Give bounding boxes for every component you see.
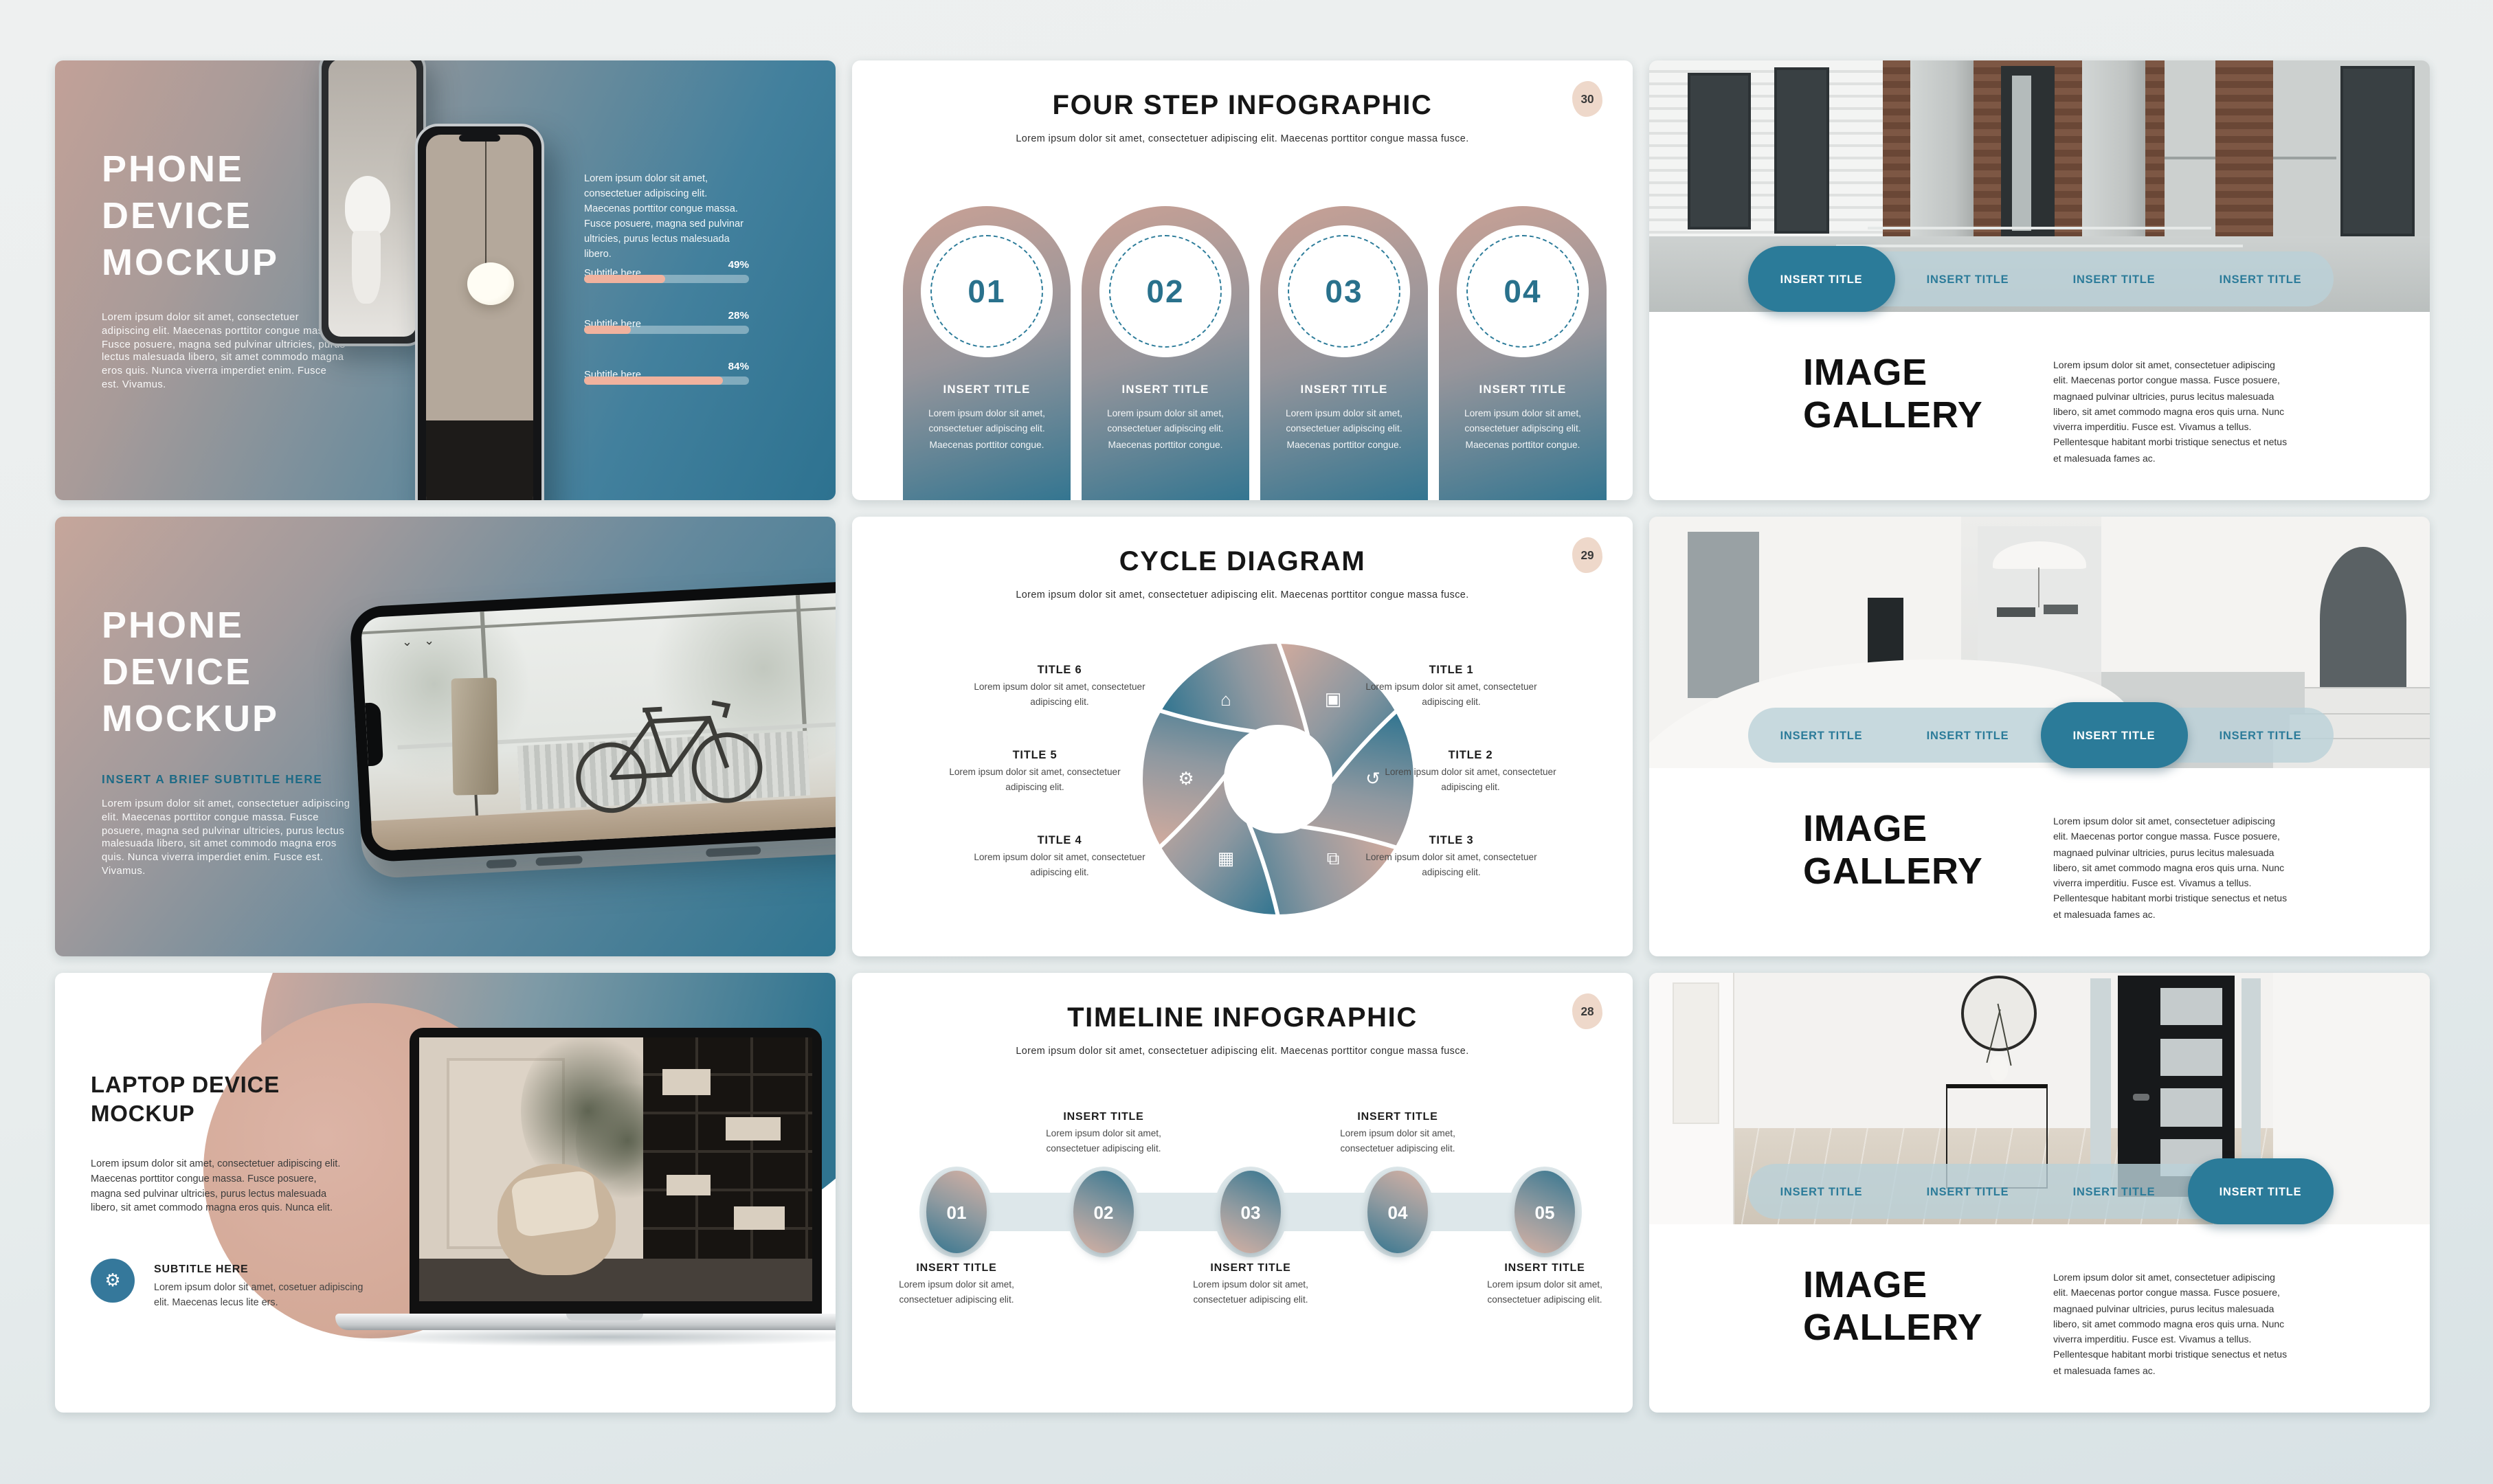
- callout-title: SUBTITLE HERE: [154, 1263, 249, 1275]
- siding-wall: [1649, 60, 1891, 244]
- step-number-circle: 03: [1278, 225, 1410, 357]
- chair-cushion: [510, 1169, 600, 1238]
- dark-floor: [419, 1259, 812, 1301]
- gallery-tab-bar: INSERT TITLE INSERT TITLE INSERT TITLE I…: [1748, 1164, 2334, 1219]
- door-pane: [2160, 1088, 2223, 1126]
- birds: ⌄ ⌄: [401, 633, 438, 650]
- tab-insert-title-3[interactable]: INSERT TITLE: [2041, 1164, 2187, 1219]
- shelf-pillow: [734, 1206, 785, 1230]
- door-glass: [2012, 76, 2031, 232]
- vase-shape: [344, 176, 390, 237]
- body-text: Lorem ipsum dolor sit amet, consectetuer…: [2053, 359, 2290, 467]
- lamp-cord: [485, 135, 487, 270]
- step-title: INSERT TITLE: [903, 382, 1071, 396]
- tab-insert-title-2[interactable]: INSERT TITLE: [1894, 251, 2041, 306]
- progress-track: [584, 326, 749, 334]
- cycle-item-2: TITLE 2 Lorem ipsum dolor sit amet, cons…: [1381, 749, 1560, 796]
- slide-title: LAPTOP DEVICE MOCKUP: [91, 1072, 280, 1129]
- slide-title: CYCLE DIAGRAM: [852, 547, 1633, 578]
- pedestal-shape: [351, 231, 381, 303]
- cycle-item-4: TITLE 4 Lorem ipsum dolor sit amet, cons…: [970, 834, 1149, 881]
- step-number: 02: [1146, 273, 1184, 310]
- laptop-shadow: [330, 1327, 836, 1347]
- body-text: Lorem ipsum dolor sit amet, consectetuer…: [2053, 1271, 2290, 1380]
- gallery-tab-bar: INSERT TITLE INSERT TITLE INSERT TITLE I…: [1748, 251, 2334, 306]
- gallery-tab-bar: INSERT TITLE INSERT TITLE INSERT TITLE I…: [1748, 708, 2334, 763]
- slide-four-step-infographic[interactable]: FOUR STEP INFOGRAPHIC Lorem ipsum dolor …: [852, 60, 1633, 500]
- tab-insert-title-4[interactable]: INSERT TITLE: [2187, 251, 2334, 306]
- slide-title: FOUR STEP INFOGRAPHIC: [852, 91, 1633, 122]
- step-title: INSERT TITLE: [1082, 382, 1249, 396]
- step-column-2: 02 INSERT TITLE Lorem ipsum dolor sit am…: [1082, 206, 1249, 500]
- cycle-item-5: TITLE 5 Lorem ipsum dolor sit amet, cons…: [946, 749, 1124, 796]
- body-text: Lorem ipsum dolor sit amet, consectetuer…: [91, 1157, 349, 1216]
- vase: [1989, 1056, 2008, 1081]
- progress-track: [584, 376, 749, 385]
- wood-sculpture: [451, 677, 498, 795]
- side-text: Lorem ipsum dolor sit amet, consectetuer…: [584, 170, 749, 261]
- timeline-node-3: 03: [1220, 1171, 1281, 1253]
- step-edge: [1837, 244, 2243, 247]
- step-column-1: 01 INSERT TITLE Lorem ipsum dolor sit am…: [903, 206, 1071, 500]
- shelf-pillow: [726, 1116, 781, 1140]
- phone-mockup-landscape: ⌄ ⌄: [349, 581, 836, 890]
- step-body: Lorem ipsum dolor sit amet, consectetuer…: [1097, 407, 1234, 453]
- step-number: 03: [1325, 273, 1363, 310]
- progress-fill: [584, 275, 665, 283]
- tab-insert-title-1[interactable]: INSERT TITLE: [1748, 1164, 1894, 1219]
- laptop-screen: [410, 1028, 822, 1316]
- dark-furniture-band: [426, 421, 533, 501]
- slide-title: IMAGE GALLERY: [1803, 352, 1983, 437]
- slide-laptop-device-mockup[interactable]: LAPTOP DEVICE MOCKUP Lorem ipsum dolor s…: [55, 973, 836, 1413]
- timeline-label-3: INSERT TITLE Lorem ipsum dolor sit amet,…: [1176, 1261, 1325, 1308]
- timeline-label-2: INSERT TITLE Lorem ipsum dolor sit amet,…: [1029, 1110, 1178, 1157]
- slide-title: PHONE DEVICE MOCKUP: [102, 602, 279, 742]
- tree-blur: [361, 592, 539, 783]
- shelf-linens: [663, 1069, 711, 1095]
- map-icon: ⧉: [1327, 848, 1340, 870]
- tab-insert-title-3[interactable]: INSERT TITLE: [2041, 251, 2187, 306]
- tab-insert-title-1[interactable]: INSERT TITLE: [1748, 246, 1894, 312]
- slide-subtitle: INSERT A BRIEF SUBTITLE HERE: [102, 772, 322, 786]
- slide-image-gallery-3[interactable]: INSERT TITLE INSERT TITLE INSERT TITLE I…: [1649, 973, 2430, 1413]
- cycle-item-3: TITLE 3 Lorem ipsum dolor sit amet, cons…: [1362, 834, 1541, 881]
- phone-button: [486, 859, 517, 868]
- door-sidelight: [2090, 978, 2111, 1194]
- presentation-canvas: PHONE DEVICE MOCKUP Lorem ipsum dolor si…: [0, 0, 2493, 1484]
- tab-insert-title-3[interactable]: INSERT TITLE: [2041, 702, 2187, 768]
- phone-button: [535, 855, 583, 866]
- page-number-badge: 29: [1572, 537, 1602, 573]
- cubes-icon: ▣: [1325, 688, 1342, 710]
- step-column-3: 03 INSERT TITLE Lorem ipsum dolor sit am…: [1260, 206, 1428, 500]
- tab-insert-title-4[interactable]: INSERT TITLE: [2187, 708, 2334, 763]
- slide-subtitle: Lorem ipsum dolor sit amet, consectetuer…: [852, 1044, 1633, 1057]
- progress-item: Subtitle here 84%: [584, 360, 749, 385]
- step-body: Lorem ipsum dolor sit amet, consectetuer…: [1275, 407, 1413, 453]
- phone-screen: [426, 135, 533, 500]
- white-door: [1673, 983, 1719, 1124]
- step-title: INSERT TITLE: [1439, 382, 1607, 396]
- slide-title: TIMELINE INFOGRAPHIC: [852, 1003, 1633, 1035]
- step-body: Lorem ipsum dolor sit amet, consectetuer…: [1454, 407, 1591, 453]
- tab-insert-title-2[interactable]: INSERT TITLE: [1894, 708, 2041, 763]
- slide-subtitle: Lorem ipsum dolor sit amet, consectetuer…: [852, 588, 1633, 600]
- body-text: Lorem ipsum dolor sit amet, consectetuer…: [102, 797, 352, 878]
- phone-screen: ⌄ ⌄: [361, 592, 836, 851]
- umbrella-pole: [2038, 567, 2039, 607]
- grey-door: [1688, 532, 1758, 698]
- slide-cycle-diagram[interactable]: CYCLE DIAGRAM Lorem ipsum dolor sit amet…: [852, 517, 1633, 956]
- slide-image-gallery-1[interactable]: INSERT TITLE INSERT TITLE INSERT TITLE I…: [1649, 60, 2430, 500]
- shelf-towels: [667, 1175, 710, 1196]
- door-handle: [2133, 1094, 2149, 1101]
- lounge-chair: [1997, 607, 2036, 618]
- door-pane: [2160, 988, 2223, 1026]
- progress-item: Subtitle here 49%: [584, 258, 749, 283]
- window: [1688, 73, 1751, 229]
- timeline-node-2: 02: [1073, 1171, 1134, 1253]
- timeline-node-4: 04: [1367, 1171, 1428, 1253]
- progress-value: 28%: [728, 309, 749, 322]
- body-text: Lorem ipsum dolor sit amet, consectetuer…: [2053, 815, 2290, 923]
- phone-mockup-front: [415, 124, 544, 500]
- slide-phone-device-mockup-portrait[interactable]: PHONE DEVICE MOCKUP Lorem ipsum dolor si…: [55, 60, 836, 500]
- slide-subtitle: Lorem ipsum dolor sit amet, consectetuer…: [852, 132, 1633, 144]
- progress-item: Subtitle here 28%: [584, 309, 749, 334]
- tab-insert-title-4[interactable]: INSERT TITLE: [2187, 1158, 2334, 1224]
- progress-value: 84%: [728, 360, 749, 372]
- gear-icon: ⚙: [1178, 768, 1194, 790]
- tab-insert-title-2[interactable]: INSERT TITLE: [1894, 1164, 2041, 1219]
- step-number-circle: 02: [1099, 225, 1231, 357]
- step-number-circle: 01: [921, 225, 1053, 357]
- slide-phone-device-mockup-landscape[interactable]: PHONE DEVICE MOCKUP INSERT A BRIEF SUBTI…: [55, 517, 836, 956]
- step-number: 04: [1503, 273, 1541, 310]
- gears-icon: ⚙: [91, 1259, 135, 1303]
- history-clock-icon: ↺: [1365, 768, 1380, 790]
- page-number-badge: 30: [1572, 81, 1602, 117]
- factory-icon: ⌂: [1220, 689, 1231, 710]
- body-text: Lorem ipsum dolor sit amet, consectetuer…: [102, 311, 346, 392]
- slide-timeline-infographic[interactable]: TIMELINE INFOGRAPHIC Lorem ipsum dolor s…: [852, 973, 1633, 1413]
- phone-frame: ⌄ ⌄: [349, 581, 836, 863]
- bicycle-graphic: [544, 675, 791, 823]
- phone-notch: [459, 135, 500, 142]
- slide-title: PHONE DEVICE MOCKUP: [102, 146, 279, 286]
- callout-body: Lorem ipsum dolor sit amet, cosetuer adi…: [154, 1281, 368, 1309]
- slide-image-gallery-2[interactable]: INSERT TITLE INSERT TITLE INSERT TITLE I…: [1649, 517, 2430, 956]
- progress-track: [584, 275, 749, 283]
- lounge-chair: [2044, 605, 2079, 615]
- door-pane: [2160, 1038, 2223, 1076]
- cycle-item-1: TITLE 1 Lorem ipsum dolor sit amet, cons…: [1362, 664, 1541, 710]
- progress-value: 49%: [728, 258, 749, 271]
- tab-insert-title-1[interactable]: INSERT TITLE: [1748, 708, 1894, 763]
- phone-speaker-slot: [706, 846, 761, 857]
- step-column-4: 04 INSERT TITLE Lorem ipsum dolor sit am…: [1439, 206, 1607, 500]
- laptop-base: [335, 1314, 836, 1330]
- calendar-icon: ▦: [1218, 848, 1235, 870]
- cycle-item-6: TITLE 6 Lorem ipsum dolor sit amet, cons…: [970, 664, 1149, 710]
- laptop-notch: [566, 1314, 643, 1320]
- step-number-circle: 04: [1457, 225, 1589, 357]
- step-title: INSERT TITLE: [1260, 382, 1428, 396]
- timeline-node-1: 01: [926, 1171, 987, 1253]
- timeline-node-5: 05: [1514, 1171, 1575, 1253]
- window: [2340, 65, 2414, 236]
- phone-mockup-back: [319, 60, 426, 346]
- step-number: 01: [968, 273, 1005, 310]
- window: [1774, 68, 1829, 234]
- timeline-label-1: INSERT TITLE Lorem ipsum dolor sit amet,…: [882, 1261, 1031, 1308]
- slide-title: IMAGE GALLERY: [1803, 1264, 1983, 1349]
- laptop-screen-content: [419, 1037, 812, 1301]
- phone-screen: [328, 60, 416, 337]
- step-edge: [1868, 227, 2211, 229]
- slide-title: IMAGE GALLERY: [1803, 808, 1983, 893]
- timeline-label-4: INSERT TITLE Lorem ipsum dolor sit amet,…: [1323, 1110, 1472, 1157]
- progress-fill: [584, 376, 723, 385]
- step-body: Lorem ipsum dolor sit amet, consectetuer…: [918, 407, 1055, 453]
- progress-fill: [584, 326, 630, 334]
- timeline-label-5: INSERT TITLE Lorem ipsum dolor sit amet,…: [1471, 1261, 1619, 1308]
- page-number-badge: 28: [1572, 993, 1602, 1029]
- pendant-lamp: [467, 262, 513, 305]
